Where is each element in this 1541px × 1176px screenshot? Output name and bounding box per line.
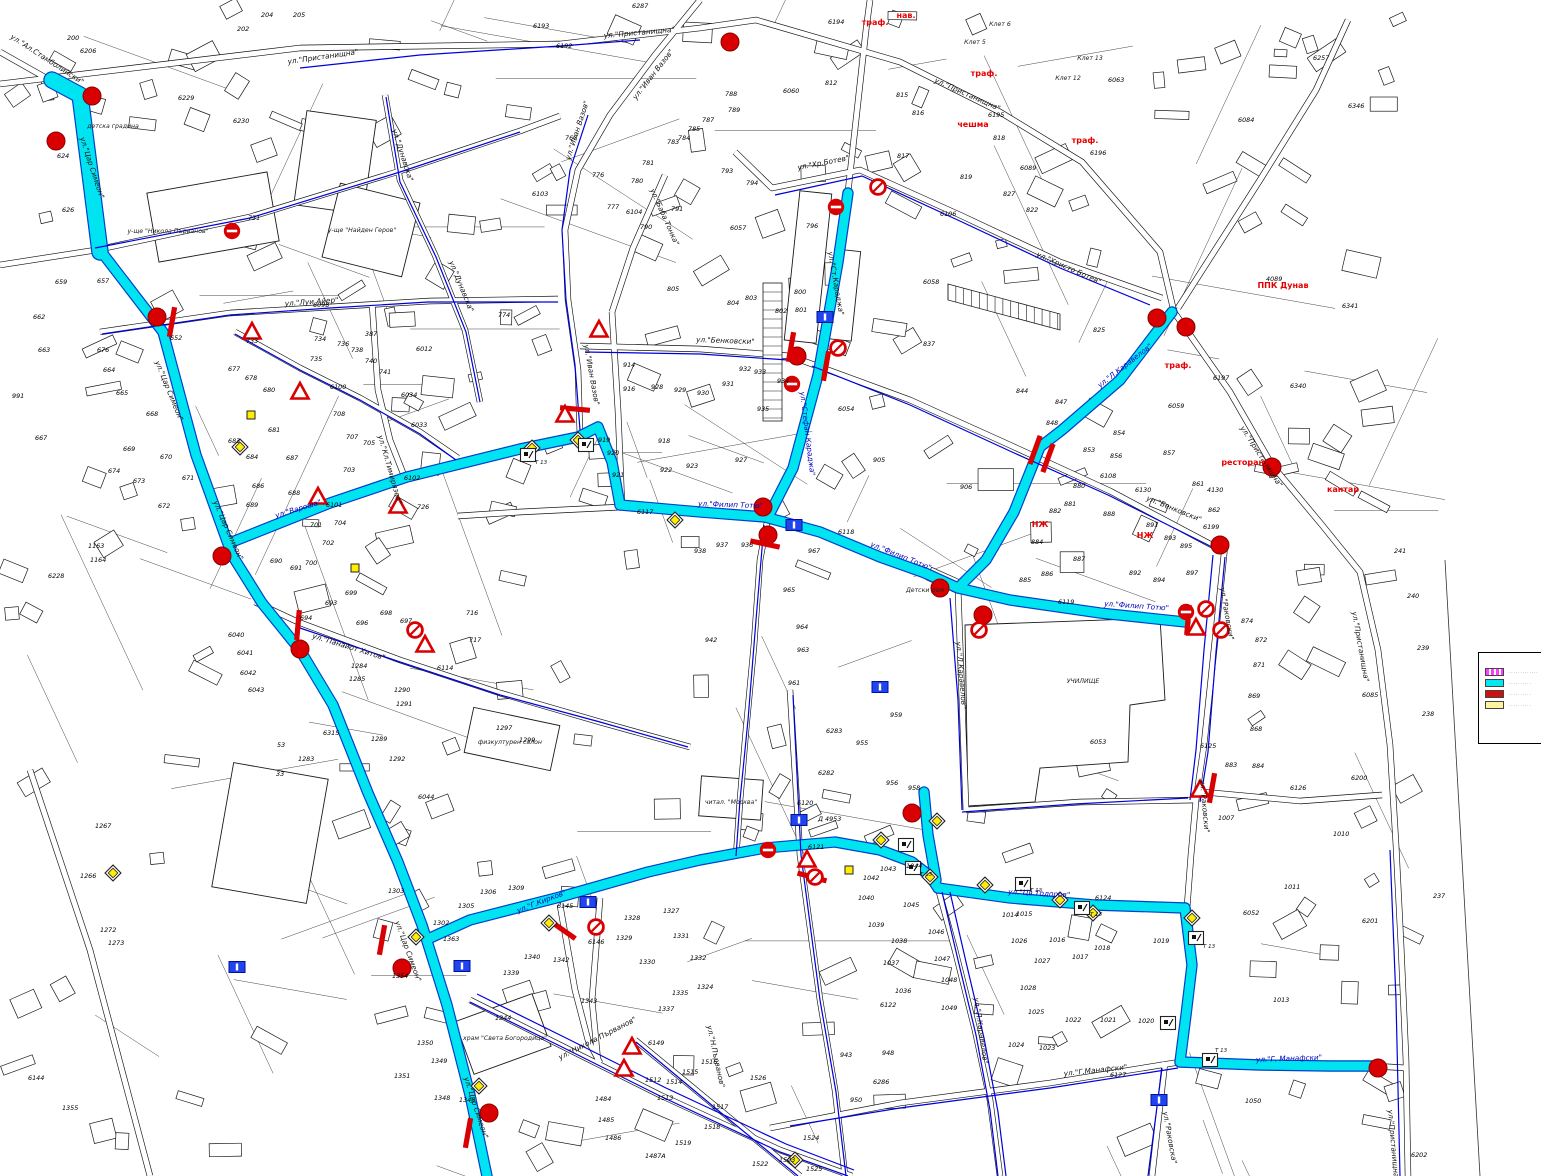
parcel-number: 1486: [605, 1134, 621, 1142]
parcel-number: 815: [896, 91, 908, 99]
parcel-number: 871: [1253, 661, 1265, 669]
parcel-number: 906: [960, 483, 972, 491]
parcel-number: 893: [1164, 534, 1176, 542]
parcel-number: 1525: [806, 1165, 822, 1173]
parcel-number: 1019: [1153, 937, 1169, 945]
parcel-number: 6033: [411, 421, 427, 429]
parcel-number: 6054: [838, 405, 854, 413]
parcel-number: 204: [261, 11, 273, 19]
parcel-number: 1018: [1094, 944, 1110, 952]
parcel-number: 1015: [1016, 910, 1032, 918]
parcel-number: 6193: [533, 22, 549, 30]
yellow-node-marker[interactable]: [845, 866, 853, 874]
poi-label: УЧИЛИЩЕ: [1067, 678, 1100, 685]
hydrant-node-marker[interactable]: [1177, 318, 1195, 336]
parcel-number: 774: [498, 311, 510, 319]
warning-triangle-marker[interactable]: [616, 1060, 633, 1076]
no-stopping-sign-marker[interactable]: [831, 341, 846, 356]
parcel-number: 1023: [1039, 1044, 1055, 1052]
parcel-number: 882: [1049, 507, 1061, 515]
parcel-number: 1011: [1284, 883, 1300, 891]
parcel-number: 1267: [95, 822, 111, 830]
parcel-number: 1045: [903, 901, 919, 909]
parcel-number: 958: [908, 784, 920, 792]
parcel-number: 905: [873, 456, 885, 464]
parcel-number: 1273: [108, 939, 124, 947]
poi-label: физкултурен салон: [478, 739, 542, 746]
parcel-number: 1330: [639, 958, 655, 966]
parcel-number: 1342: [553, 956, 569, 964]
parcel-number: 883: [1225, 761, 1237, 769]
parcel-number: 1522: [752, 1160, 768, 1168]
valve-box-marker[interactable]: [579, 439, 594, 452]
parcel-number: 1348: [434, 1094, 450, 1102]
parcel-number: 777: [607, 203, 619, 211]
parcel-number: 1349: [431, 1057, 447, 1065]
parcel-number: 1039: [868, 921, 884, 929]
parcel-number: 1524: [803, 1134, 819, 1142]
parcel-number: 6341: [1342, 302, 1358, 310]
parcel-number: 881: [1064, 500, 1076, 508]
parcel-number: 781: [642, 159, 654, 167]
parcel-number: 790: [640, 223, 652, 231]
parcel-number: 4130: [1207, 486, 1223, 494]
parcel-number: 928: [651, 383, 663, 391]
parcel-number: 6101: [326, 501, 342, 509]
blue-hydrant-flag-marker[interactable]: [791, 815, 807, 826]
parcel-number: 678: [245, 374, 257, 382]
parcel-number: 886: [1041, 570, 1053, 578]
parcel-number: 6108: [1100, 472, 1116, 480]
parcel-number: 672: [158, 502, 170, 510]
parcel-number: 6283: [826, 727, 842, 735]
no-entry-sign-marker[interactable]: [760, 842, 776, 858]
parcel-number: 688: [288, 489, 300, 497]
valve-id-label: Т 13: [1203, 944, 1216, 950]
parcel-number: 6197: [1213, 374, 1229, 382]
parcel-number: 1354: [392, 972, 408, 980]
parcel-number: 681: [268, 426, 280, 434]
parcel-number: 664: [103, 366, 115, 374]
legend-label: ..........: [1509, 702, 1532, 707]
legend-label: .............: [1509, 669, 1539, 674]
parcel-number: 6012: [416, 345, 432, 353]
parcel-number: 923: [686, 462, 698, 470]
poi-label: Клет 13: [1077, 55, 1103, 62]
parcel-number: 897: [1186, 569, 1198, 577]
parcel-number: 6044: [418, 793, 434, 801]
parcel-number: 716: [466, 609, 478, 617]
parcel-number: 1043: [880, 865, 896, 873]
valve-box-marker[interactable]: [1203, 1054, 1218, 1067]
parcel-number: 805: [667, 285, 679, 293]
parcel-number: 776: [592, 171, 604, 179]
parcel-number: 6146: [588, 938, 604, 946]
parcel-number: 800: [794, 288, 806, 296]
parcel-number: 1328: [624, 914, 640, 922]
parcel-number: 959: [890, 711, 902, 719]
legend-row: ..........: [1485, 699, 1541, 710]
parcel-number: 6194: [828, 18, 844, 26]
parcel-number: 955: [856, 739, 868, 747]
valve-id-label: Т 13: [1090, 912, 1103, 918]
utility-red-label: траф.: [1072, 136, 1099, 145]
parcel-number: 1344: [495, 1014, 511, 1022]
hydrant-node-marker[interactable]: [974, 606, 992, 624]
parcel-number: 934: [777, 377, 789, 385]
parcel-number: 6118: [838, 528, 854, 536]
legend-label: ..........: [1509, 691, 1532, 696]
parcel-number: 964: [796, 623, 808, 631]
parcel-number: 1272: [100, 926, 116, 934]
parcel-number: 920: [607, 449, 619, 457]
parcel-number: Д 4953: [817, 815, 841, 823]
valve-box-marker[interactable]: [899, 839, 914, 852]
parcel-number: 1007: [1218, 814, 1234, 822]
hydrant-node-marker[interactable]: [148, 308, 166, 326]
parcel-number: 6257: [1313, 54, 1329, 62]
warning-triangle-marker[interactable]: [591, 321, 608, 337]
parcel-number: 704: [334, 519, 346, 527]
parcel-number: 825: [1093, 326, 1105, 334]
parcel-number: 6315: [323, 729, 339, 737]
warning-triangle-marker[interactable]: [292, 383, 309, 399]
parcel-number: 239: [1417, 644, 1429, 652]
hydrant-node-marker[interactable]: [721, 33, 739, 51]
parcel-number: 6089: [1020, 164, 1036, 172]
parcel-number: 1515: [682, 1068, 698, 1076]
parcel-number: 6286: [873, 1078, 889, 1086]
parcel-number: 1022: [1065, 1016, 1081, 1024]
parcel-number: 1285: [349, 675, 365, 683]
parcel-number: 6058: [923, 278, 939, 286]
parcel-number: 1284: [351, 662, 367, 670]
parcel-number: 677: [228, 365, 240, 373]
hydrant-node-marker[interactable]: [1369, 1059, 1387, 1077]
parcel-number: 895: [1180, 542, 1192, 550]
parcel-number: 1050: [1245, 1097, 1261, 1105]
blue-hydrant-flag-marker[interactable]: [229, 962, 245, 973]
parcel-number: 916: [623, 385, 635, 393]
parcel-number: 874: [1241, 617, 1253, 625]
parcel-number: 665: [116, 389, 128, 397]
parcel-number: 991: [12, 392, 24, 400]
parcel-number: 6282: [818, 769, 834, 777]
no-stopping-sign-marker[interactable]: [589, 920, 604, 935]
parcel-number: 663: [38, 346, 50, 354]
parcel-number: 1024: [1008, 1041, 1024, 1049]
hydrant-diamond-marker[interactable]: [105, 865, 121, 881]
parcel-number: 789: [728, 106, 740, 114]
parcel-number: 6117: [637, 508, 653, 516]
parcel-number: 1047: [934, 955, 950, 963]
parcel-number: 659: [55, 278, 67, 286]
street-name-label: ул."Пристанищна": [932, 75, 1002, 113]
parcel-number: 891: [1146, 521, 1158, 529]
parcel-number: 801: [795, 306, 807, 314]
no-stopping-sign-marker[interactable]: [871, 180, 886, 195]
parcel-number: 937: [716, 541, 728, 549]
parcel-number: 812: [825, 79, 837, 87]
valve-id-label: Т 13: [535, 460, 548, 466]
parcel-number: 6195: [988, 111, 1004, 119]
parcel-number: 788: [725, 90, 737, 98]
blue-hydrant-flag-marker[interactable]: [817, 312, 833, 323]
parcel-number: 671: [182, 474, 194, 482]
closed-valve-bar-marker[interactable]: [463, 1118, 473, 1148]
street-network: [0, 0, 1480, 1176]
parcel-number: 6106: [940, 210, 956, 218]
legend-swatch: [1485, 690, 1504, 698]
parcel-number: 938: [694, 547, 706, 555]
parcel-number: 6040: [228, 631, 244, 639]
parcel-number: 701: [310, 521, 322, 529]
blue-hydrant-flag-marker[interactable]: [1151, 1095, 1167, 1106]
parcel-number: 1329: [616, 934, 632, 942]
parcel-number: 1485: [598, 1116, 614, 1124]
parcel-number: 1044: [906, 862, 922, 870]
parcel-number: 844: [1016, 387, 1028, 395]
parcel-number: 6114: [437, 664, 453, 672]
parcel-number: 667: [35, 434, 47, 442]
no-entry-sign-marker[interactable]: [828, 199, 844, 215]
parcel-number: 6200: [1351, 774, 1367, 782]
parcel-number: 1335: [672, 989, 688, 997]
no-stopping-sign-marker[interactable]: [1199, 602, 1214, 617]
parcel-number: 780: [631, 177, 643, 185]
parcel-number: 967: [808, 547, 820, 555]
parcel-number: 670: [160, 453, 172, 461]
parcel-number: 6052: [1243, 909, 1259, 917]
parcel-number: 6043: [248, 686, 264, 694]
utility-red-label: траф.: [971, 69, 998, 78]
parcel-number: 819: [960, 173, 972, 181]
parcel-number: 6063: [1108, 76, 1124, 84]
parcel-number: 387: [365, 330, 377, 338]
hydrant-node-marker[interactable]: [1211, 536, 1229, 554]
street-name-label: ул."Дунавска": [447, 258, 476, 313]
parcel-number: 1042: [863, 874, 879, 882]
parcel-number: 857: [1163, 449, 1175, 457]
hydrant-node-marker[interactable]: [1148, 309, 1166, 327]
warning-triangle-marker[interactable]: [417, 636, 434, 652]
parcel-number: 1283: [298, 755, 314, 763]
parcel-number: 6199: [1203, 523, 1219, 531]
parcel-number: 793: [721, 167, 733, 175]
parcel-number: 848: [1046, 419, 1058, 427]
parcel-number: 930: [697, 389, 709, 397]
parcel-number: 6202: [1411, 1151, 1427, 1159]
no-entry-sign-marker[interactable]: [224, 223, 240, 239]
parcel-number: 1343: [581, 997, 597, 1005]
poi-label: Детски дом: [905, 587, 944, 594]
parcel-number: 1016: [1049, 936, 1065, 944]
street-name-label: ул."Раковски": [1198, 778, 1212, 833]
parcel-number: 686: [252, 482, 264, 490]
valve-box-marker[interactable]: [1075, 902, 1090, 915]
parcel-number: 918: [658, 437, 670, 445]
parcel-number: 1297: [496, 724, 512, 732]
street-name-label: ул."Бенковски": [1144, 493, 1203, 524]
cadastral-map-viewport[interactable]: Т 13Т 13Т 13Т 13Т 13Т 13 200202204205620…: [0, 0, 1541, 1176]
parcel-number: 6346: [1348, 102, 1364, 110]
valve-box-marker[interactable]: [1189, 932, 1204, 945]
city-map-canvas[interactable]: Т 13Т 13Т 13Т 13Т 13Т 13 200202204205620…: [0, 0, 1541, 1176]
parcel-number: 956: [886, 779, 898, 787]
parcel-number: 794: [746, 179, 758, 187]
parcel-number: 927: [735, 456, 747, 464]
parcel-number: 961: [788, 679, 800, 687]
parcel-number: 717: [469, 636, 481, 644]
no-stopping-sign-marker[interactable]: [972, 623, 987, 638]
parcel-number: 1340: [524, 953, 540, 961]
parcel-number: 950: [850, 1096, 862, 1104]
parcel-number: 6206: [80, 47, 96, 55]
parcel-number: 6122: [880, 1001, 896, 1009]
parcel-number: 942: [705, 636, 717, 644]
parcel-number: 1266: [80, 872, 96, 880]
hydrant-node-marker[interactable]: [213, 547, 231, 565]
parcel-number: 652: [170, 334, 182, 342]
parcel-number: 673: [133, 477, 145, 485]
parcel-number: 1020: [1138, 1017, 1154, 1025]
parcel-number: 932: [739, 365, 751, 373]
poi-label: читал. "Москва": [705, 799, 758, 806]
parcel-number: 674: [108, 467, 120, 475]
no-stopping-sign-marker[interactable]: [808, 870, 823, 885]
valve-box-marker[interactable]: [521, 449, 536, 462]
parcel-number: 6119: [1058, 598, 1074, 606]
utility-red-label: ППК Дунав: [1257, 281, 1308, 290]
legend-row: .............: [1485, 666, 1541, 677]
blue-hydrant-flag-marker[interactable]: [872, 682, 888, 693]
parcel-number: 1332: [690, 954, 706, 962]
parcel-number: 699: [345, 589, 357, 597]
parcel-number: 861: [1192, 480, 1204, 488]
parcel-number: 933: [754, 368, 766, 376]
parcel-number: 736: [337, 340, 349, 348]
blue-hydrant-flag-marker[interactable]: [580, 897, 596, 908]
parcel-number: 731: [248, 214, 260, 222]
parcel-number: 880: [1073, 482, 1085, 490]
parcel-number: 822: [1026, 206, 1038, 214]
parcel-number: 6287: [632, 2, 648, 10]
utility-red-label: траф.: [862, 18, 889, 27]
no-entry-sign-marker[interactable]: [1178, 604, 1194, 620]
parcel-number: 948: [882, 1049, 894, 1057]
parcel-number: 6196: [1090, 149, 1106, 157]
parcel-number: 6103: [532, 190, 548, 198]
parcel-number: 885: [1019, 576, 1031, 584]
parcel-number: 1514: [666, 1078, 682, 1086]
yellow-node-marker[interactable]: [351, 564, 359, 572]
utility-red-label: ресторант: [1221, 458, 1269, 467]
parcel-number: 6340: [1290, 382, 1306, 390]
parcel-number: 734: [314, 335, 326, 343]
parcel-number: 6192: [556, 42, 572, 50]
yellow-node-marker[interactable]: [247, 411, 255, 419]
poi-label: Клет 12: [1055, 75, 1081, 82]
hydrant-node-marker[interactable]: [83, 87, 101, 105]
legend-header: · ·: [1485, 657, 1541, 666]
parcel-number: 738: [351, 346, 363, 354]
blue-hydrant-flag-marker[interactable]: [786, 520, 802, 531]
parcel-number: 6042: [240, 669, 256, 677]
utility-red-label: НЖ: [1137, 531, 1154, 540]
parcel-number: 702: [322, 539, 334, 547]
parcel-number: 705: [363, 439, 375, 447]
parcel-number: 1025: [1028, 1008, 1044, 1016]
hydrant-node-marker[interactable]: [47, 132, 65, 150]
parcel-number: 1292: [389, 755, 405, 763]
parcel-number: 816: [912, 109, 924, 117]
parcel-number: 240: [1407, 592, 1419, 600]
parcel-number: 1289: [371, 735, 387, 743]
parcel-number: 700: [305, 559, 317, 567]
parcel-number: 1163: [88, 542, 104, 550]
parcel-number: 626: [62, 206, 74, 214]
parcel-number: 703: [343, 466, 355, 474]
parcel-number: 1339: [503, 969, 519, 977]
parcel-number: 740: [365, 357, 377, 365]
parcel-number: 827: [1003, 190, 1015, 198]
hydrant-node-marker[interactable]: [291, 640, 309, 658]
parcel-number: 697: [400, 617, 412, 625]
parcel-number: 1048: [941, 976, 957, 984]
parcel-number: 694: [300, 614, 312, 622]
valve-box-marker[interactable]: [1161, 1017, 1176, 1030]
parcel-number: 862: [1208, 506, 1220, 514]
parcel-number: 1164: [90, 556, 106, 564]
parcel-number: 237: [1433, 892, 1445, 900]
parcel-number: 818: [993, 134, 1005, 142]
parcel-number: 238: [1422, 710, 1434, 718]
legend-label: ..........: [1509, 680, 1532, 685]
parcel-number: 6144: [28, 1074, 44, 1082]
parcel-number: 676: [97, 346, 109, 354]
parcel-number: 847: [1055, 398, 1067, 406]
parcel-number: 1484: [595, 1095, 611, 1103]
parcel-number: 687: [286, 454, 298, 462]
parcel-number: 53: [277, 741, 285, 749]
legend-row: ..........: [1485, 677, 1541, 688]
parcel-number: 1049: [941, 1004, 957, 1012]
parcel-number: 669: [123, 445, 135, 453]
hydrant-diamond-marker[interactable]: [541, 915, 557, 931]
parcel-number: 696: [356, 619, 368, 627]
parcel-number: 1355: [62, 1104, 78, 1112]
parcel-number: 6104: [626, 208, 642, 216]
hydrant-node-marker[interactable]: [903, 804, 921, 822]
blue-hydrant-flag-marker[interactable]: [454, 961, 470, 972]
parcel-number: 6059: [1168, 402, 1184, 410]
parcel-number: 837: [923, 340, 935, 348]
utility-red-label: нав.: [896, 11, 915, 20]
parcel-number: 1517: [712, 1103, 728, 1111]
legend-swatch: [1485, 668, 1504, 676]
legend-swatch: [1485, 679, 1504, 687]
parcel-number: 1013: [1273, 996, 1289, 1004]
parcel-number: 691: [290, 564, 302, 572]
parcel-number: 872: [1255, 636, 1267, 644]
parcel-number: 1037: [883, 959, 899, 967]
parcel-number: 892: [1129, 569, 1141, 577]
parcel-number: 202: [237, 25, 249, 33]
parcel-number: 6126: [1290, 784, 1306, 792]
parcel-number: 965: [783, 586, 795, 594]
poi-label: у-ще "Никола Първанов": [127, 228, 209, 235]
parcel-number: 6041: [237, 649, 253, 657]
